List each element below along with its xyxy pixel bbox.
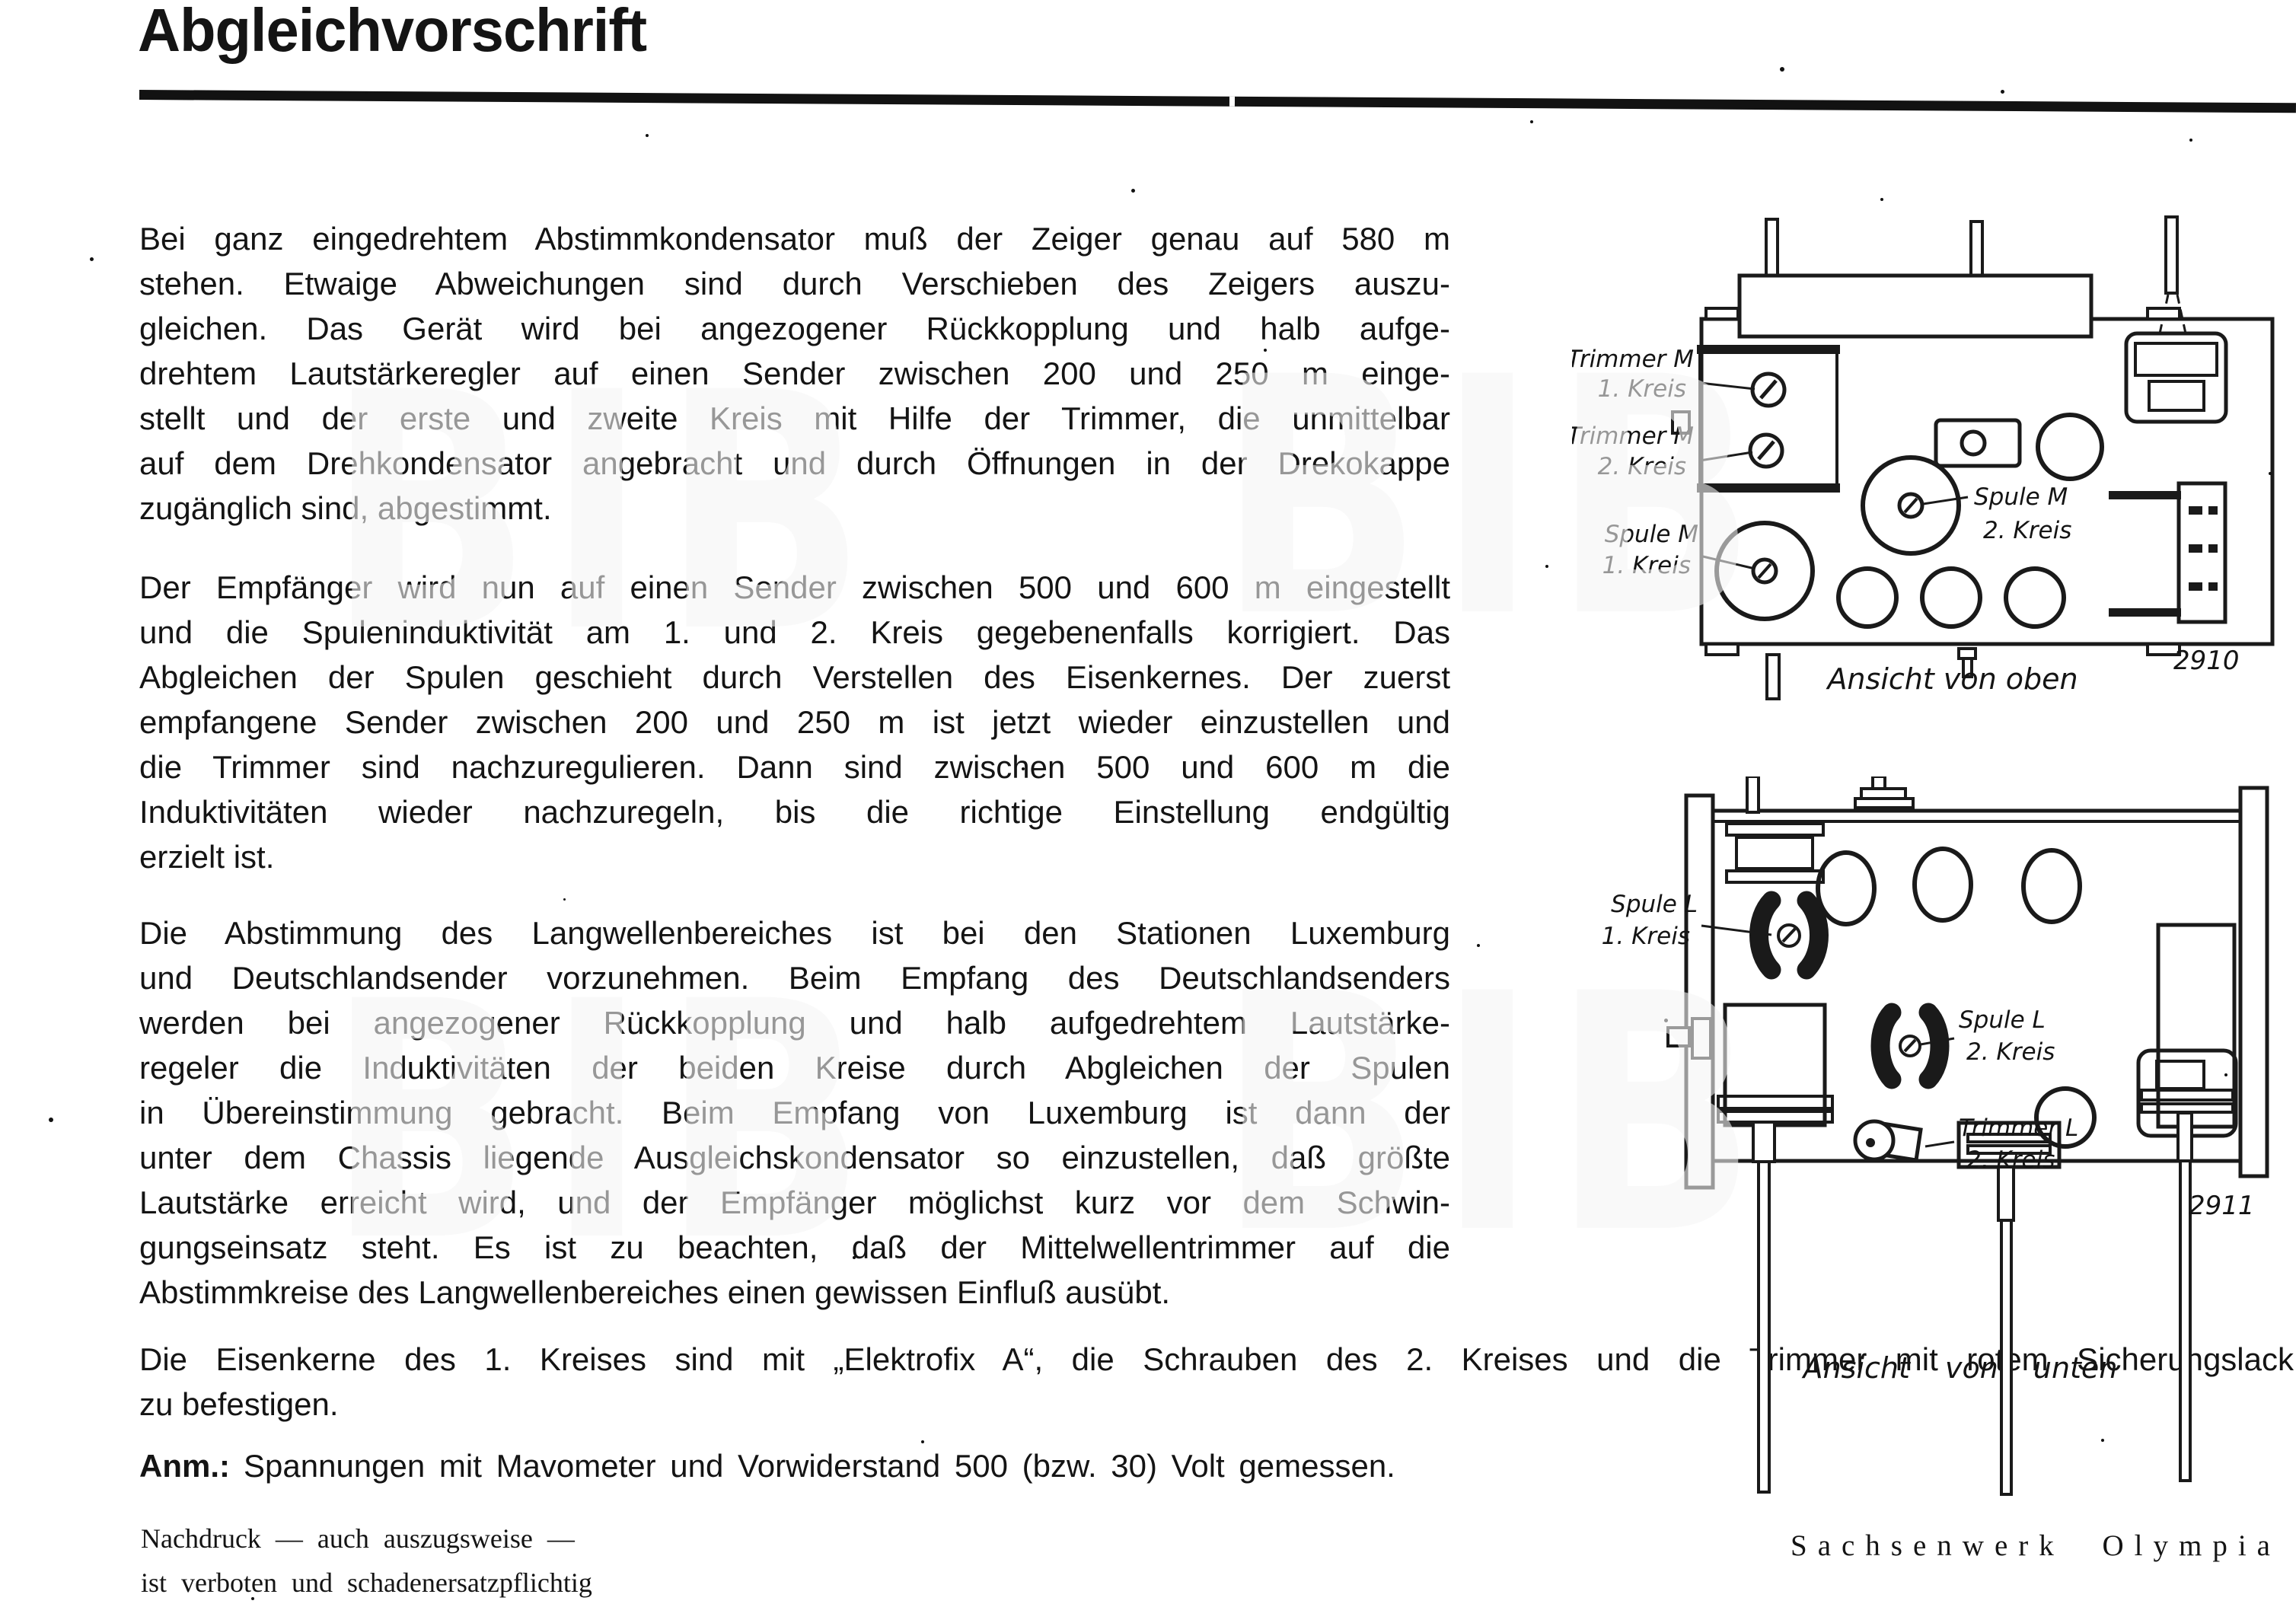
figure-number: 2911	[2189, 1191, 2255, 1221]
text-line: die Trimmer sind nachzuregulieren. Dann …	[139, 745, 1450, 789]
trimmer-m1-label: Trimmer M	[1572, 346, 1694, 373]
spule-l2-label: Spule L	[1959, 1006, 2046, 1034]
text-line: unter dem Chassis liegende Ausgleichskon…	[139, 1135, 1450, 1180]
text-line: werden bei angezogener Rückkopplung und …	[139, 1000, 1450, 1045]
figure-number: 2910	[2173, 646, 2240, 676]
dial-plate	[1740, 276, 2091, 336]
side-knob	[1668, 1028, 1689, 1046]
capacitor-bracket	[2126, 333, 2226, 422]
page-title: Abgleichvorschrift	[138, 0, 646, 65]
tube-hole	[1922, 569, 1980, 627]
diagram-caption: Ansicht von unten	[1801, 1351, 2118, 1385]
shaft-icon	[1766, 219, 1778, 277]
scanned-document-page: BIB BIB BIB BIB Abgleichvorschrift Bei g…	[0, 0, 2296, 1623]
paragraph-1: Bei ganz eingedrehtem Abstimmkondensator…	[139, 216, 1450, 531]
text-line: Induktivitäten wieder nachzuregeln, bis …	[139, 789, 1450, 834]
copyright-line: ist verboten und schadenersatzpflichtig	[141, 1561, 592, 1605]
text-line: zugänglich sind, abgestimmt.	[139, 486, 1450, 531]
shaft-icon	[2166, 217, 2177, 293]
capacitor-clamp	[1727, 824, 1823, 882]
text-line: Der Empfänger wird nun auf einen Sender …	[139, 565, 1450, 610]
trimmer-m2-label: 2. Kreis	[1598, 453, 1686, 480]
spule-m2-label: 2. Kreis	[1983, 517, 2071, 544]
text-line: stehen. Etwaige Abweichungen sind durch …	[139, 261, 1450, 306]
spule-l2-label: 2. Kreis	[1966, 1038, 2055, 1066]
text-line: drehtem Lautstärkeregler auf einen Sende…	[139, 351, 1450, 396]
tube-hole	[2006, 569, 2064, 627]
tube-hole	[2038, 415, 2102, 479]
trimmer-l2	[1855, 1121, 1921, 1160]
coil-can	[1697, 345, 1840, 493]
text-line: Bei ganz eingedrehtem Abstimmkondensator…	[139, 216, 1450, 261]
text-line: auf dem Drehkondensator angebracht und d…	[139, 441, 1450, 486]
component-rect	[2158, 925, 2234, 1127]
text-line: gleichen. Das Gerät wird bei angezogener…	[139, 306, 1450, 351]
bottom-center-bracket	[1959, 1123, 2059, 1494]
trimmer-m2-label: Trimmer M	[1572, 422, 1694, 450]
shaft-icon	[1767, 655, 1779, 699]
bottom-view-diagram: Spule L 1. Kreis Spule L 2. Kreis Trimme…	[1572, 776, 2295, 1538]
note-text: Spannungen mit Mavometer und Vorwidersta…	[244, 1448, 1395, 1484]
note-label: Anm.:	[139, 1448, 230, 1484]
bottom-left-assembly	[1718, 1096, 1832, 1492]
note-line: Anm.:Spannungen mit Mavometer und Vorwid…	[139, 1443, 1395, 1488]
spule-l1-label: Spule L	[1611, 891, 1698, 918]
text-line: in Übereinstimmung gebracht. Beim Empfan…	[139, 1090, 1450, 1135]
trimmer-m1-screw	[1752, 374, 1784, 406]
trimmer-l2-label: Trimmer L	[1959, 1114, 2078, 1142]
spule-m1-coil	[1717, 523, 1813, 619]
text-line: Die Abstimmung des Langwellenbereiches i…	[139, 910, 1450, 955]
chassis-rail	[1686, 796, 1713, 1188]
tube-hole	[1838, 569, 1896, 627]
transformer-block	[2109, 483, 2225, 622]
text-line: Abstimmkreise des Langwellenbereiches ei…	[139, 1270, 1450, 1315]
shaft-icon	[1747, 776, 1759, 812]
spule-m1-label: Spule M	[1605, 521, 1698, 548]
text-line: Lautstärke erreicht wird, und der Empfän…	[139, 1180, 1450, 1225]
spule-l2-coil	[1880, 1012, 1940, 1079]
copyright-line: Nachdruck — auch auszugsweise —	[141, 1516, 592, 1561]
chassis-rail	[2240, 788, 2267, 1176]
oval-hole	[1818, 853, 1874, 924]
trimmer-m2-screw	[1750, 435, 1782, 467]
paragraph-2: Der Empfänger wird nun auf einen Sender …	[139, 565, 1450, 879]
oval-hole	[2023, 850, 2080, 922]
text-line: erzielt ist.	[139, 834, 1450, 879]
spule-m1-label: 1. Kreis	[1602, 552, 1691, 579]
spule-l1-label: 1. Kreis	[1602, 923, 1690, 950]
oval-hole	[1915, 849, 1971, 920]
text-line: Abgleichen der Spulen geschieht durch Ve…	[139, 655, 1450, 700]
shaft-icon	[1971, 222, 1982, 277]
paragraph-3: Die Abstimmung des Langwellenbereiches i…	[139, 910, 1450, 1315]
top-view-diagram: Trimmer M 1. Kreis Trimmer M 2. Kreis Sp…	[1572, 209, 2295, 735]
spule-m2-coil	[1863, 458, 1959, 553]
bottom-right-clamp	[2138, 1051, 2236, 1481]
copyright-notice: Nachdruck — auch auszugsweise — ist verb…	[141, 1516, 592, 1605]
text-line: stellt und der erste und zweite Kreis mi…	[139, 396, 1450, 441]
small-component	[1936, 420, 2020, 466]
title-underline-rule	[139, 90, 2296, 113]
diagram-caption: Ansicht von oben	[1825, 662, 2078, 696]
text-line: empfangene Sender zwischen 200 und 250 m…	[139, 700, 1450, 745]
text-line: regeler die Induktivitäten der beiden Kr…	[139, 1045, 1450, 1090]
text-line: und Deutschlandsender vorzunehmen. Beim …	[139, 955, 1450, 1000]
trimmer-m1-label: 1. Kreis	[1598, 375, 1686, 403]
spule-m2-label: Spule M	[1974, 483, 2068, 511]
trimmer-l2-label: 2. Kreis	[1966, 1146, 2055, 1174]
text-line: und die Spuleninduktivität am 1. und 2. …	[139, 610, 1450, 655]
text-line: gungseinsatz steht. Es ist zu beachten, …	[139, 1225, 1450, 1270]
